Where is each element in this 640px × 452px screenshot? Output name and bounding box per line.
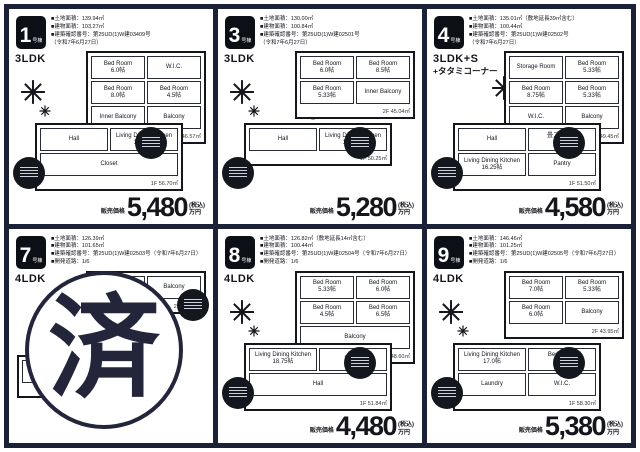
room-cell: Living Dining Kitchen16.25帖 [458,153,526,176]
price-block: 販売価格 5,280 (税込)万円 [306,196,414,219]
info-permit-number: ■建築確認番号：第25UD(1)W建02501号 [260,32,418,40]
unit-number-suffix: 号棟 [450,37,460,46]
info-building-area: ■建物面積：100.44㎡ [469,24,627,32]
room-cell: Bed Room7.0帖 [509,276,563,299]
room-cell: Bed Room4.5帖 [300,301,354,324]
room-cell: Living Dining Kitchen18.75帖 [249,348,317,371]
info-land-area: ■土地面積：130.00㎡ [260,16,418,24]
room-cell: Inner Balcony [356,81,410,104]
layout-type: 3LDK+S [433,53,479,65]
unit-panel-9: 9 号棟 4LDK ■土地面積：146.46㎡ ■建物面積：101.25㎡ ■建… [427,229,631,444]
layout-type: 4LDK [433,273,464,285]
info-permit-date: （令和7年6月27日） [51,40,209,48]
sparkle-icon [248,105,260,117]
price-label: 販売価格 [519,206,543,215]
promo-badge [344,347,376,379]
unit-panel-7: 7 号棟 4LDK ■土地面積：126.39㎡ ■建物面積：101.65㎡ ■建… [9,229,213,444]
room-cell: Balcony [565,301,619,324]
promo-badge [553,347,585,379]
room-cell: Laundry [458,373,526,396]
floor-area-label: 1F 58.30㎡ [455,399,599,409]
floor-area-label: 1F 56.70㎡ [37,179,181,189]
promo-badge [344,127,376,159]
rooms-2f: Bed Room6.0帖 Bed Room8.5帖 Bed Room5.33帖 … [297,53,413,107]
room-cell: Bed Room6.0帖 [356,276,410,299]
price-block: 販売価格 5,380 (税込)万円 [515,415,623,438]
price-label: 販売価格 [310,206,334,215]
info-permit-date: （令和7年6月27日） [260,40,418,48]
price-amount: 4,480 [336,415,396,438]
price-suffix: (税込)万円 [607,203,623,218]
sparkle-icon [438,299,464,325]
unit-number-suffix: 号棟 [241,257,251,266]
unit-number-badge: 1 号棟 [16,16,46,49]
room-cell: Bed Room6.0帖 [300,56,354,79]
room-cell: Bed Room5.33帖 [565,56,619,79]
info-permit-date: （令和7年6月27日） [469,40,627,48]
room-cell: Bed Room5.33帖 [300,276,354,299]
unit-number-suffix: 号棟 [241,37,251,46]
room-cell: Bed Room6.0帖 [509,301,563,324]
promo-badge [135,127,167,159]
rooms-2f: Bed Room6.0帖 W.I.C. Bed Room8.0帖 Bed Roo… [88,53,204,132]
promo-badge [13,157,45,189]
unit-info: ■土地面積：126.82㎡（敷地延長14㎡含む） ■建物面積：100.44㎡ ■… [260,236,418,268]
rooms-2f: Bed Room7.0帖 Bed Room5.33帖 Bed Room6.0帖 … [506,273,622,327]
unit-number: 4 [438,25,450,46]
floor-area-label: 1F 51.50㎡ [455,179,599,189]
unit-number-badge: 9 号棟 [434,236,464,269]
promo-badge [222,157,254,189]
promo-badge [553,127,585,159]
unit-info: ■土地面積：146.46㎡ ■建物面積：101.25㎡ ■建築確認番号：第25U… [469,236,627,268]
price-amount: 5,480 [127,196,187,219]
info-land-area: ■土地面積：135.01㎡（敷地延長39㎡含む） [469,16,627,24]
floor-area-label: 1F 51.84㎡ [246,399,390,409]
unit-info: ■土地面積：126.39㎡ ■建物面積：101.65㎡ ■建築確認番号：第25U… [51,236,209,268]
price-label: 販売価格 [519,425,543,434]
promo-badge [431,377,463,409]
info-road-share: ■開発道路：1/6 [260,259,418,267]
layout-type: 3LDK [224,53,255,65]
unit-info: ■土地面積：139.94㎡ ■建物面積：103.27㎡ ■建築確認番号：第25U… [51,16,209,48]
unit-number: 3 [229,25,241,46]
floor-plan-2f: Bed Room6.0帖 Bed Room8.5帖 Bed Room5.33帖 … [295,51,415,119]
price-block: 販売価格 4,480 (税込)万円 [306,415,414,438]
room-cell: W.I.C. [147,56,201,79]
room-cell: Bed Room6.0帖 [91,56,145,79]
room-cell: Bed Room6.5帖 [356,301,410,324]
info-permit-number: ■建築確認番号：第25UD(1)W建02502号 [469,32,627,40]
price-block: 販売価格 4,580 (税込)万円 [515,196,623,219]
price-label: 販売価格 [310,425,334,434]
unit-number: 7 [20,245,32,266]
room-cell: Bed Room8.0帖 [91,81,145,104]
room-cell: Living Dining Kitchen17.0帖 [458,348,526,371]
info-road-share: ■開発道路：1/6 [469,259,627,267]
floor-area-label: 2F 45.04㎡ [297,107,413,117]
price-block: 販売価格 5,480 (税込)万円 [97,196,205,219]
room-cell: Bed Room5.33帖 [565,276,619,299]
price-suffix: (税込)万円 [607,422,623,437]
room-cell: Bed Room5.33帖 [300,81,354,104]
sparkle-icon [229,299,255,325]
info-land-area: ■土地面積：139.94㎡ [51,16,209,24]
unit-number-suffix: 号棟 [32,257,42,266]
info-building-area: ■建物面積：103.27㎡ [51,24,209,32]
room-cell: Bed Room4.5帖 [147,81,201,104]
price-amount: 5,280 [336,196,396,219]
sparkle-icon [229,79,255,105]
price-amount: 5,380 [545,415,605,438]
unit-number-suffix: 号棟 [450,257,460,266]
info-building-area: ■建物面積：100.84㎡ [260,24,418,32]
sparkle-icon [39,105,51,117]
sparkle-icon [457,325,469,337]
room-cell: Bed Room8.75帖 [509,81,563,104]
layout-type: 4LDK [15,273,46,285]
unit-number-badge: 8 号棟 [225,236,255,269]
price-suffix: (税込)万円 [398,422,414,437]
unit-number-badge: 7 号棟 [16,236,46,269]
sold-stamp: 済 [25,271,183,429]
unit-panel-4: 4 号棟 3LDK+S +タタミコーナー ■土地面積：135.01㎡（敷地延長3… [427,9,631,224]
layout-type: 4LDK [224,273,255,285]
promo-badge [222,377,254,409]
price-suffix: (税込)万円 [189,203,205,218]
rooms-2f: Bed Room5.33帖 Bed Room6.0帖 Bed Room4.5帖 … [297,273,413,352]
unit-number: 8 [229,245,241,266]
floor-plan-2f: Bed Room7.0帖 Bed Room5.33帖 Bed Room6.0帖 … [504,271,624,339]
unit-info: ■土地面積：130.00㎡ ■建物面積：100.84㎡ ■建築確認番号：第25U… [260,16,418,48]
flyer-sheet: 1 号棟 3LDK ■土地面積：139.94㎡ ■建物面積：103.27㎡ ■建… [0,0,640,452]
unit-panel-1: 1 号棟 3LDK ■土地面積：139.94㎡ ■建物面積：103.27㎡ ■建… [9,9,213,224]
room-cell: Storage Room [509,56,563,79]
room-cell: Bed Room5.33帖 [565,81,619,104]
unit-info: ■土地面積：135.01㎡（敷地延長39㎡含む） ■建物面積：100.44㎡ ■… [469,16,627,48]
unit-number-suffix: 号棟 [32,37,42,46]
layout-type: 3LDK [15,53,46,65]
unit-number-badge: 3 号棟 [225,16,255,49]
promo-badge [431,157,463,189]
floor-area-label: 2F 43.95㎡ [506,327,622,337]
unit-number-badge: 4 号棟 [434,16,464,49]
room-cell: Bed Room8.5帖 [356,56,410,79]
price-suffix: (税込)万円 [398,203,414,218]
info-permit-number: ■建築確認番号：第25UD(1)W建03409号 [51,32,209,40]
layout-type-extra: +タタミコーナー [433,65,497,77]
unit-number: 9 [438,245,450,266]
room-cell: Hall [458,128,526,151]
promo-badge [177,289,209,321]
price-label: 販売価格 [101,206,125,215]
rooms-2f: Storage Room Bed Room5.33帖 Bed Room8.75帖… [506,53,622,132]
info-road-share: ■開発道路：1/6 [51,259,209,267]
unit-panel-3: 3 号棟 3LDK ■土地面積：130.00㎡ ■建物面積：100.84㎡ ■建… [218,9,422,224]
sparkle-icon [248,325,260,337]
unit-grid: 1 号棟 3LDK ■土地面積：139.94㎡ ■建物面積：103.27㎡ ■建… [4,4,636,448]
room-cell: Hall [40,128,108,151]
unit-panel-8: 8 号棟 4LDK ■土地面積：126.82㎡（敷地延長14㎡含む） ■建物面積… [218,229,422,444]
price-amount: 4,580 [545,196,605,219]
room-cell: Hall [249,128,317,151]
unit-number: 1 [20,25,32,46]
sparkle-icon [20,79,46,105]
